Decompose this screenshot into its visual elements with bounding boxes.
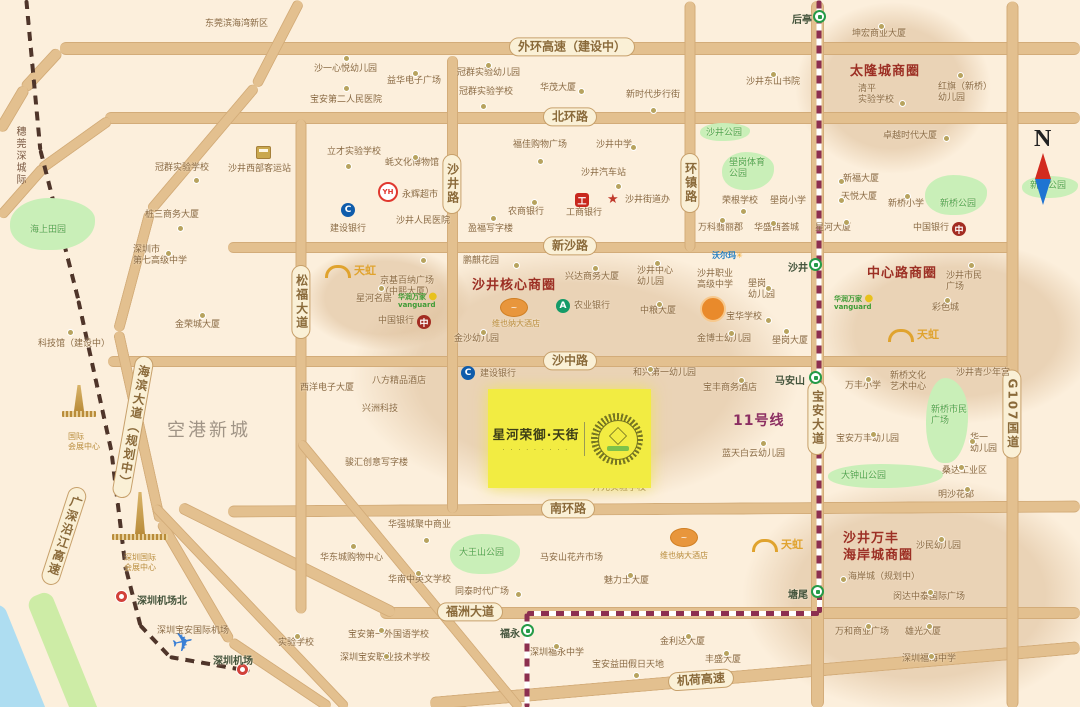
poi-label: 冠群实验学校 bbox=[459, 87, 513, 98]
poi-dot bbox=[490, 215, 497, 222]
poi-label: 沙井东山书院 bbox=[746, 77, 800, 88]
poi-dot bbox=[412, 70, 419, 77]
poi-label: 盈福写字楼 bbox=[468, 224, 513, 235]
poi-dot bbox=[654, 260, 661, 267]
road bbox=[20, 46, 65, 93]
poi-label: 荣根学校 bbox=[722, 196, 758, 207]
park-label: 大钟山公园 bbox=[841, 471, 886, 482]
road-label: 机荷高速 bbox=[667, 668, 734, 692]
poi-label: 沙井街道办 bbox=[625, 195, 670, 206]
poi-dot bbox=[656, 301, 663, 308]
poi-label: 沙井中学 bbox=[596, 140, 632, 151]
poi-dot bbox=[958, 464, 965, 471]
district-label: 沙井核心商圈 bbox=[472, 278, 556, 295]
poi-dot bbox=[870, 431, 877, 438]
metro-station-icon bbox=[811, 585, 824, 598]
poi-label: 华强城聚中商业 bbox=[388, 520, 451, 531]
road bbox=[1006, 1, 1018, 707]
poi-dot bbox=[840, 576, 847, 583]
badge-green-band bbox=[607, 446, 629, 451]
poi-dot bbox=[383, 653, 390, 660]
poi-dot bbox=[412, 154, 419, 161]
poi-label: 深圳国际会展中心 bbox=[124, 553, 156, 573]
project-highlight-block: 星河荣御·天街 · · · · · · · · · bbox=[488, 389, 651, 488]
poi-label: 永辉超市 bbox=[402, 190, 438, 201]
poi-dot bbox=[843, 219, 850, 226]
poi-label: 沙井西部客运站 bbox=[228, 164, 291, 175]
poi-dot bbox=[515, 591, 522, 598]
park-label: 沙井公园 bbox=[706, 128, 742, 139]
poi-dot bbox=[838, 197, 845, 204]
poi-label: 中国银行 bbox=[913, 223, 949, 234]
poi-label: 卓越时代大厦 bbox=[883, 131, 937, 142]
poi-label: 万丰小学 bbox=[845, 381, 881, 392]
poi-label: 宝华学校 bbox=[726, 312, 762, 323]
road bbox=[296, 119, 307, 613]
poi-label: 壆岗大厦 bbox=[772, 336, 808, 347]
metro-line-11 bbox=[527, 611, 819, 616]
poi-label: 坤宏商业大厦 bbox=[852, 29, 906, 40]
road-label: 福洲大道 bbox=[437, 602, 503, 621]
poi-label: 维也纳大酒店 bbox=[492, 319, 540, 329]
poi-dot bbox=[420, 257, 427, 264]
road bbox=[447, 56, 458, 513]
convention-center-icon bbox=[112, 492, 168, 540]
poi-label: 魅力士大厦 bbox=[604, 576, 649, 587]
poi-dot bbox=[927, 589, 934, 596]
poi-dot bbox=[740, 208, 747, 215]
poi-dot bbox=[378, 627, 385, 634]
poi-dot bbox=[345, 163, 352, 170]
park-label: 海上田园 bbox=[30, 225, 66, 236]
metro-station-label: 马安山 bbox=[775, 372, 805, 387]
metro-station-icon bbox=[521, 624, 534, 637]
poi-label: 宝丰商务酒店 bbox=[703, 383, 757, 394]
poi-dot bbox=[633, 672, 640, 679]
poi-label: 丰盛大厦 bbox=[705, 655, 741, 666]
poi-dot bbox=[343, 55, 350, 62]
road-label: 新沙路 bbox=[543, 236, 597, 255]
bus-station-icon bbox=[256, 146, 271, 159]
road-label: 北环路 bbox=[543, 107, 597, 126]
poi-dot bbox=[943, 135, 950, 142]
poi-label: 立才实验学校 bbox=[327, 147, 381, 158]
poi-label: 西洋电子大厦 bbox=[300, 383, 354, 394]
poi-label: 维也纳大酒店 bbox=[660, 551, 708, 561]
ccb-bank-icon: C bbox=[341, 203, 355, 217]
poi-dot bbox=[480, 329, 487, 336]
district-label: 太隆城商圈 bbox=[850, 64, 920, 81]
poi-label: 和兴第一幼儿园 bbox=[633, 368, 696, 379]
poi-label: 宝安万丰幼儿园 bbox=[836, 434, 899, 445]
project-name-block: 星河荣御·天街 · · · · · · · · · bbox=[488, 424, 584, 454]
icbc-bank-icon: 工 bbox=[575, 193, 589, 207]
poi-dot bbox=[760, 440, 767, 447]
vanguard-logo: 华润万家 ●vanguard bbox=[398, 291, 437, 310]
road bbox=[146, 82, 260, 214]
poi-label: 新福大厦 bbox=[843, 174, 879, 185]
poi-label: 建设银行 bbox=[330, 224, 366, 235]
poi-label: 沙井汽车站 bbox=[581, 168, 626, 179]
road-label: 沙井路 bbox=[442, 154, 461, 214]
poi-label: 沙井市民广场 bbox=[946, 271, 982, 294]
rail-station-icon bbox=[115, 590, 128, 603]
road-label: 外环高速（建设中） bbox=[509, 37, 635, 56]
compass-north-label: N bbox=[1034, 126, 1051, 153]
poi-label: 马安山花卉市场 bbox=[540, 553, 603, 564]
poi-dot bbox=[728, 330, 735, 337]
road bbox=[228, 242, 1012, 253]
poi-dot bbox=[957, 72, 964, 79]
poi-dot bbox=[165, 250, 172, 257]
district-label: 沙井万丰海岸城商圈 bbox=[843, 531, 913, 565]
poi-dot bbox=[838, 178, 845, 185]
poi-label: 桩三商务大厦 bbox=[145, 210, 199, 221]
park-label: 新桥公园 bbox=[940, 199, 976, 210]
metro-station-label: 塘尾 bbox=[788, 586, 808, 601]
poi-dot bbox=[193, 177, 200, 184]
metro-line-11 bbox=[817, 0, 822, 592]
poi-label: 彩色城 bbox=[932, 303, 959, 314]
poi-label: 金沙幼儿园 bbox=[454, 334, 499, 345]
poi-label: 深圳宝安国际机场 bbox=[157, 626, 229, 637]
poi-label: 沙井中心幼儿园 bbox=[637, 266, 673, 289]
poi-label: 壆岗小学 bbox=[770, 196, 806, 207]
poi-label: 华东城购物中心 bbox=[320, 553, 383, 564]
poi-dot bbox=[783, 328, 790, 335]
boc-bank-icon: 中 bbox=[952, 222, 966, 236]
poi-dot bbox=[765, 317, 772, 324]
poi-dot bbox=[865, 376, 872, 383]
poi-label: 金博士幼儿园 bbox=[697, 334, 751, 345]
poi-dot bbox=[480, 103, 487, 110]
poi-label: 宝安益田假日天地 bbox=[592, 660, 664, 671]
poi-label: 万和商业广场 bbox=[835, 627, 889, 638]
poi-dot bbox=[770, 220, 777, 227]
poi-dot bbox=[67, 329, 74, 336]
rail-line-label: 穗莞深城际 bbox=[12, 126, 27, 186]
tianhong-logo: 天虹 bbox=[752, 536, 803, 552]
hotel-oval-icon: ~ bbox=[500, 298, 528, 317]
road-label: 环镇路 bbox=[680, 153, 699, 213]
poi-dot bbox=[968, 262, 975, 269]
poi-label: 沙井人民医院 bbox=[396, 216, 450, 227]
compass-needle-south-icon bbox=[1035, 179, 1051, 205]
project-seal-badge bbox=[591, 413, 643, 465]
poi-label: 工商银行 bbox=[566, 208, 602, 219]
vanguard-logo: 华润万家 ●vanguard bbox=[834, 293, 873, 312]
poi-label: 金利达大厦 bbox=[660, 637, 705, 648]
tianhong-logo: 天虹 bbox=[325, 262, 376, 278]
poi-dot bbox=[685, 633, 692, 640]
compass: N bbox=[1034, 126, 1051, 205]
poi-label: 新时代步行街 bbox=[626, 90, 680, 101]
poi-label: 福佳购物广场 bbox=[513, 140, 567, 151]
poi-label: 国际会展中心 bbox=[68, 432, 100, 452]
poi-label: 沙民幼儿园 bbox=[916, 541, 961, 552]
poi-dot bbox=[423, 537, 430, 544]
poi-dot bbox=[770, 71, 777, 78]
badge-diamond-icon bbox=[609, 427, 627, 445]
metro-station-label: 沙井 bbox=[788, 259, 808, 274]
poi-label: 建设银行 bbox=[480, 369, 516, 380]
metro-station-icon bbox=[809, 258, 822, 271]
poi-dot bbox=[415, 570, 422, 577]
poi-dot bbox=[899, 100, 906, 107]
metro-station-label: 福永 bbox=[500, 625, 520, 640]
poi-dot bbox=[378, 285, 385, 292]
poi-label: 骏汇创意写字楼 bbox=[345, 458, 408, 469]
shoreline bbox=[26, 590, 146, 707]
poi-label: 星河名居 bbox=[356, 294, 392, 305]
poi-dot bbox=[928, 653, 935, 660]
park-label: 大王山公园 bbox=[459, 548, 504, 559]
metro-station-icon bbox=[809, 371, 822, 384]
poi-label: 万科翡丽郡 bbox=[698, 223, 743, 234]
road-label: G107国道 bbox=[1002, 370, 1021, 459]
new-town-label: 空港新城 bbox=[167, 416, 251, 442]
poi-label: 同泰时代广场 bbox=[455, 587, 509, 598]
poi-label: 农商银行 bbox=[508, 207, 544, 218]
poi-label: 蓝天白云幼儿园 bbox=[722, 449, 785, 460]
poi-dot bbox=[343, 85, 350, 92]
location-map: 海上田园沙井公园壆岗体育公园新桥公园新二公园新桥市民广场大王山公园大钟山公园外环… bbox=[0, 0, 1080, 707]
ccb-bank-icon: C bbox=[461, 366, 475, 380]
abc-bank-icon: A bbox=[556, 299, 570, 313]
road bbox=[37, 115, 113, 174]
boc-bank-icon: 中 bbox=[417, 315, 431, 329]
road-label: 松福大道 bbox=[291, 265, 310, 339]
metro-station-label: 后亭 bbox=[792, 11, 812, 26]
poi-dot bbox=[904, 193, 911, 200]
poi-dot bbox=[513, 262, 520, 269]
orange-store-icon bbox=[700, 296, 726, 322]
park-label: 新桥市民广场 bbox=[931, 405, 967, 428]
poi-label: 冠群实验幼儿园 bbox=[457, 68, 520, 79]
park-label: 壆岗体育公园 bbox=[729, 158, 765, 181]
poi-label: 沙井职业高级中学 bbox=[697, 269, 733, 292]
poi-dot bbox=[177, 225, 184, 232]
poi-dot bbox=[531, 199, 538, 206]
poi-label: 清平实验学校 bbox=[858, 84, 894, 107]
divider bbox=[584, 422, 585, 456]
poi-dot bbox=[723, 650, 730, 657]
poi-dot bbox=[865, 623, 872, 630]
road-label: 宝安大道 bbox=[807, 381, 826, 455]
poi-dot bbox=[592, 265, 599, 272]
poi-label: 天悦大厦 bbox=[841, 192, 877, 203]
poi-dot bbox=[199, 312, 206, 319]
poi-label: 科技馆（建设中） bbox=[38, 339, 110, 350]
poi-dot bbox=[627, 572, 634, 579]
poi-label: 沙井青少年宫 bbox=[956, 368, 1010, 379]
poi-dot bbox=[878, 23, 885, 30]
road-label: 广深沿江高速 bbox=[39, 485, 89, 588]
road-label: 沙中路 bbox=[543, 351, 597, 370]
poi-label: 海岸城（规划中） bbox=[848, 572, 920, 583]
poi-label: 八方精品酒店 bbox=[372, 376, 426, 387]
poi-label: 金荣城大厦 bbox=[175, 320, 220, 331]
yonghui-superstore-icon: YH bbox=[378, 182, 398, 202]
poi-label: 益华电子广场 bbox=[387, 76, 441, 87]
poi-label: 宝安第二人民医院 bbox=[310, 95, 382, 106]
road-label: 南环路 bbox=[541, 499, 595, 518]
poi-dot bbox=[647, 366, 654, 373]
poi-dot bbox=[964, 486, 971, 493]
poi-dot bbox=[537, 158, 544, 165]
poi-dot bbox=[926, 623, 933, 630]
poi-label: 中国银行 bbox=[378, 316, 414, 327]
poi-dot bbox=[294, 633, 301, 640]
government-star-icon: ★ bbox=[607, 193, 619, 206]
tianhong-logo: 天虹 bbox=[888, 326, 939, 342]
road bbox=[685, 1, 696, 251]
poi-dot bbox=[630, 144, 637, 151]
poi-label: 华茂大厦 bbox=[540, 83, 576, 94]
park-area bbox=[10, 198, 95, 250]
road bbox=[113, 210, 156, 333]
poi-dot bbox=[578, 88, 585, 95]
poi-label: 新桥文化艺术中心 bbox=[890, 371, 926, 394]
poi-dot bbox=[553, 643, 560, 650]
poi-label: 兴达商务大厦 bbox=[565, 272, 619, 283]
rail-station-label: 深圳机场北 bbox=[137, 592, 187, 607]
poi-dot bbox=[350, 543, 357, 550]
poi-dot bbox=[738, 377, 745, 384]
region-label: 东莞滨海湾新区 bbox=[205, 19, 268, 30]
walmart-logo: 沃尔玛✳ bbox=[712, 252, 743, 261]
poi-label: 宝安第一外国语学校 bbox=[348, 630, 429, 641]
poi-dot bbox=[765, 285, 772, 292]
poi-label: 深圳市第七高级中学 bbox=[133, 245, 187, 268]
rail-station-label: 深圳机场 bbox=[213, 652, 253, 667]
poi-dot bbox=[719, 217, 726, 224]
poi-label: 沙一心悦幼儿园 bbox=[314, 64, 377, 75]
poi-dot bbox=[969, 438, 976, 445]
convention-center-icon bbox=[62, 385, 96, 417]
hotel-oval-icon: ~ bbox=[670, 528, 698, 547]
project-name: 星河荣御·天街 bbox=[488, 424, 584, 443]
metro-line-label: 11号线 bbox=[733, 410, 784, 430]
poi-dot bbox=[938, 536, 945, 543]
poi-label: 新桥小学 bbox=[888, 199, 924, 210]
poi-dot bbox=[485, 62, 492, 69]
poi-label: 红旗（新桥）幼儿园 bbox=[938, 82, 992, 105]
poi-label: 兴洲科技 bbox=[362, 404, 398, 415]
project-subtitle: · · · · · · · · · bbox=[488, 447, 584, 454]
poi-label: 鹏麒花园 bbox=[463, 256, 499, 267]
district-label: 中心路商圈 bbox=[867, 266, 937, 283]
poi-dot bbox=[650, 107, 657, 114]
poi-dot bbox=[615, 183, 622, 190]
poi-dot bbox=[944, 297, 951, 304]
poi-label: 冠群实验学校 bbox=[155, 163, 209, 174]
poi-label: 雄光大厦 bbox=[905, 627, 941, 638]
metro-station-icon bbox=[813, 10, 826, 23]
poi-label: 农业银行 bbox=[574, 301, 610, 312]
compass-needle-north-icon bbox=[1035, 153, 1051, 179]
